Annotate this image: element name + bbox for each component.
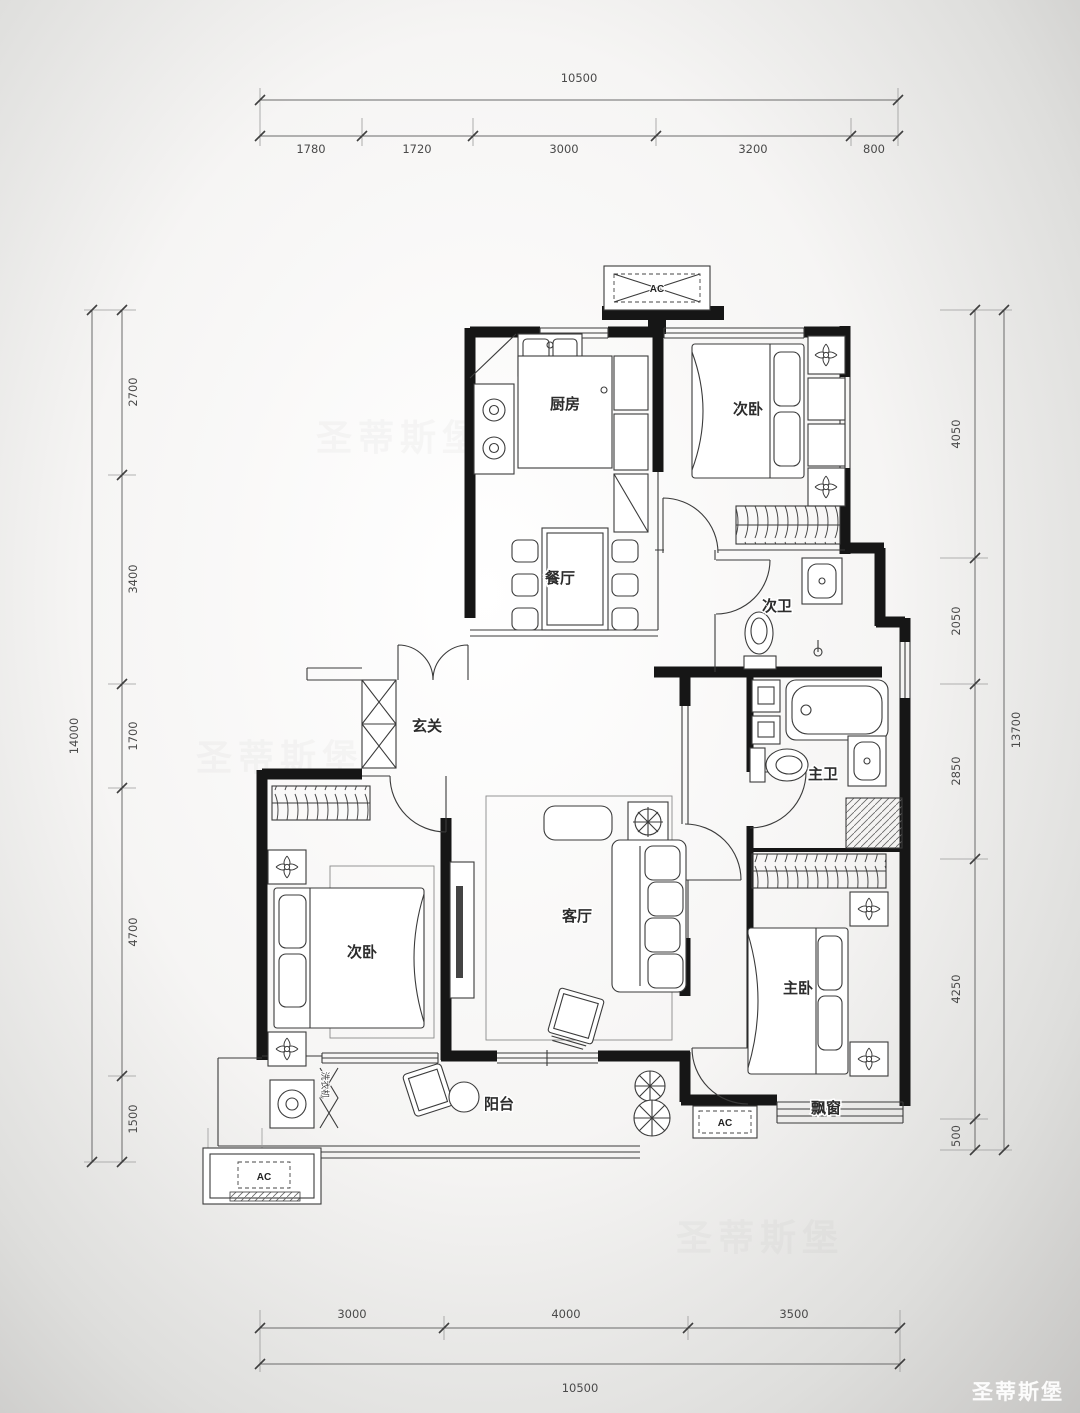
spiral-plant-icon: [634, 1071, 670, 1136]
dimension-left: 14000 2700 3400 1700 4700 1500: [67, 305, 140, 1167]
brand-watermark: 圣蒂斯堡: [972, 1380, 1064, 1404]
label-washer: 洗衣机: [320, 1071, 331, 1098]
toilet-tank: [750, 748, 765, 782]
bedroom-top-door: [663, 498, 718, 553]
label-bay-window: 飘窗: [811, 1099, 841, 1117]
sofa-cushion: [645, 918, 680, 952]
bedroom-left-door: [390, 776, 446, 832]
sofa-cushion: [645, 846, 680, 880]
bedroom-left: [268, 786, 434, 1066]
tv: [456, 886, 463, 978]
coffee-table: [546, 988, 605, 1052]
label-bedroom-top: 次卧: [733, 400, 763, 418]
dim-right-seg: 500: [949, 1125, 963, 1147]
washing-machine: [270, 1080, 314, 1128]
bath-second: [744, 558, 842, 669]
dim-top-seg: 800: [863, 142, 885, 156]
balcony-slider: [497, 1050, 598, 1066]
watermark-faint: 圣蒂斯堡: [316, 417, 484, 458]
chair: [612, 608, 638, 630]
corridor-door: [685, 824, 741, 880]
sofa-cushion: [648, 882, 683, 916]
dimension-top: 10500 1780 1720 3000 3200 800: [255, 71, 903, 156]
dim-left-seg: 3400: [126, 564, 140, 593]
dim-bottom-seg: 3000: [337, 1307, 366, 1321]
ac-label: AC: [718, 1118, 732, 1129]
dim-top-total: 10500: [561, 71, 598, 85]
dim-right-seg: 2050: [949, 606, 963, 635]
shower-area: [846, 798, 902, 848]
dim-bottom-seg: 3500: [779, 1307, 808, 1321]
balcony-chair: [402, 1063, 454, 1117]
ac-unit-top: AC: [604, 266, 710, 310]
bath-cabinet: [752, 680, 780, 712]
dim-left-seg: 1500: [126, 1104, 140, 1133]
pillow: [279, 895, 306, 948]
dim-top-seg: 1720: [402, 142, 431, 156]
dim-left-seg: 4700: [126, 917, 140, 946]
pillow: [818, 996, 842, 1050]
chair: [512, 574, 538, 596]
dim-top-seg: 3000: [549, 142, 578, 156]
pillow: [774, 352, 800, 406]
sofa-cushion: [648, 954, 683, 988]
label-kitchen: 厨房: [550, 395, 580, 413]
bath-cabinet: [752, 716, 780, 744]
chair: [612, 540, 638, 562]
chair: [612, 574, 638, 596]
bedroom-master: [748, 854, 888, 1076]
label-living: 客厅: [561, 907, 592, 925]
dim-right-total: 13700: [1009, 712, 1023, 749]
dim-right-seg: 4250: [949, 974, 963, 1003]
dim-bottom-total: 10500: [562, 1381, 599, 1395]
dimension-right: 13700 4050 2050 2850 4250 500: [940, 305, 1023, 1155]
label-bedroom-left: 次卧: [347, 943, 377, 961]
dim-left-total: 14000: [67, 718, 81, 755]
label-bedroom-master: 主卧: [783, 979, 813, 997]
pillow: [279, 954, 306, 1007]
dimension-bottom: 3000 4000 3500 10500: [255, 1307, 905, 1395]
stove: [474, 384, 514, 474]
ac-unit-bottom-left: AC: [203, 1128, 321, 1204]
cabinet: [808, 424, 845, 466]
dim-top-seg: 1780: [296, 142, 325, 156]
ac-label: AC: [650, 284, 664, 295]
bedroom-top: [692, 336, 845, 544]
pillow: [818, 936, 842, 990]
ac-unit-bottom-right: AC: [693, 1106, 757, 1138]
ottoman: [544, 806, 612, 840]
entry-door: [398, 645, 468, 680]
dim-left-seg: 2700: [126, 377, 140, 406]
dim-bottom-seg: 4000: [551, 1307, 580, 1321]
toilet-tank: [744, 656, 776, 669]
floor-plan-canvas: 圣蒂斯堡 圣蒂斯堡 圣蒂斯堡 10500 1780 1720 3000 3200…: [0, 0, 1080, 1413]
pillow: [774, 412, 800, 466]
entry-wardrobe: [362, 680, 396, 768]
watermark-faint: 圣蒂斯堡: [676, 1217, 844, 1258]
dim-right-seg: 2850: [949, 756, 963, 785]
dim-left-seg: 1700: [126, 721, 140, 750]
label-balcony: 阳台: [484, 1095, 514, 1113]
dim-right-seg: 4050: [949, 419, 963, 448]
ac-ledge-stem: [648, 318, 666, 334]
label-bath-master: 主卫: [808, 765, 838, 783]
kitchen-cabinet: [614, 356, 648, 410]
chair: [512, 540, 538, 562]
label-entry: 玄关: [412, 717, 442, 735]
ac-label: AC: [257, 1172, 271, 1183]
label-dining: 餐厅: [545, 569, 575, 587]
kitchen: [470, 334, 648, 532]
chair: [512, 608, 538, 630]
dim-top-seg: 3200: [738, 142, 767, 156]
side-table: [449, 1082, 479, 1112]
cabinet: [808, 378, 845, 420]
label-bath-second: 次卫: [762, 597, 792, 615]
kitchen-cabinet: [614, 414, 648, 470]
